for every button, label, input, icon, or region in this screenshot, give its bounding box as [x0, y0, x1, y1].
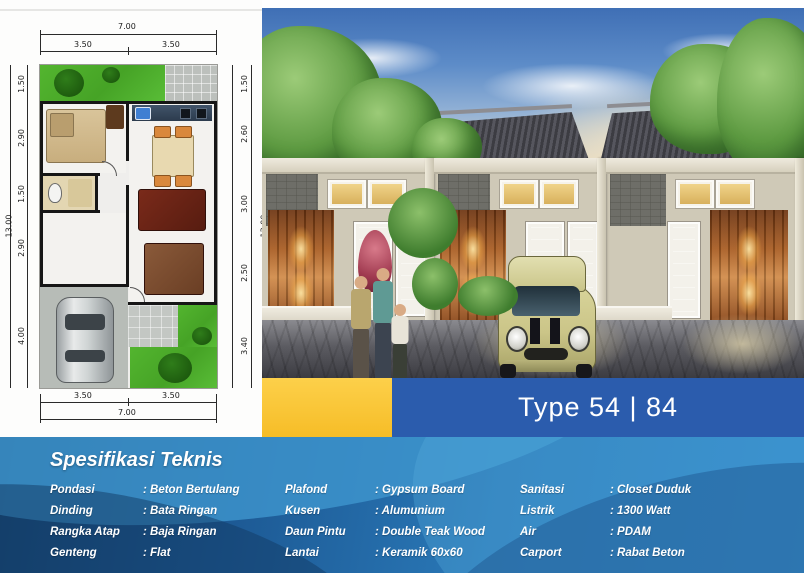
floor-plan-panel: 7.00 3.50 3.50 3.50 3.50 7.00 13.00 1.50… [0, 0, 262, 437]
spec-row: Lantai: Keramik 60x60 [285, 547, 485, 568]
spec-row: Pondasi: Beton Bertulang [50, 484, 239, 505]
spec-column-2: Plafond: Gypsum Board Kusen: Alumunium D… [285, 484, 485, 568]
bedroom-2-floor [43, 213, 126, 284]
wall-lamp-glow [460, 226, 486, 272]
spec-label: Dinding [50, 505, 143, 517]
person-legs [393, 344, 407, 378]
dim-label: 13.00 [5, 215, 13, 238]
dim-line-right-total [251, 65, 252, 388]
tree [717, 18, 804, 178]
spec-column-1: Pondasi: Beton Bertulang Dinding: Bata R… [50, 484, 239, 568]
type-bar-yellow-block [262, 378, 392, 437]
tall-window [668, 222, 700, 318]
dim-label: 7.00 [118, 23, 136, 31]
light-pool [682, 314, 802, 374]
spec-value: : Gypsum Board [375, 484, 464, 496]
spec-value: : PDAM [610, 526, 651, 538]
dim-label: 2.90 [18, 239, 26, 257]
wall-lamp-glow [736, 226, 762, 272]
person-legs [353, 329, 369, 378]
dim-tick [40, 394, 41, 423]
dining-chair [175, 126, 192, 138]
back-patio [128, 305, 178, 347]
stove-burner [180, 108, 191, 119]
divider-line [0, 9, 262, 11]
dim-line-top-total [40, 34, 217, 35]
dim-label: 2.90 [18, 129, 26, 147]
bed [46, 109, 106, 163]
dim-line-left-segments [27, 65, 28, 388]
spec-value: : Rabat Beton [610, 547, 685, 559]
person-head [355, 276, 368, 289]
bonnet-stripe [550, 318, 560, 344]
dim-label: 7.00 [118, 409, 136, 417]
headlight [506, 326, 528, 352]
spec-label: Carport [520, 547, 610, 559]
spec-row: Dinding: Bata Ringan [50, 505, 239, 526]
dim-tick [128, 398, 129, 406]
sitting-sofa [144, 243, 204, 295]
fascia [434, 158, 604, 174]
spec-value: : 1300 Watt [610, 505, 671, 517]
headlight [568, 326, 590, 352]
dim-line-right-segments [232, 65, 233, 388]
dim-label: 3.50 [162, 392, 180, 400]
dim-label: 1.50 [18, 75, 26, 93]
spec-label: Kusen [285, 505, 375, 517]
person-torso [351, 289, 371, 329]
dim-tick [216, 394, 217, 423]
house-render-panel [262, 8, 804, 378]
spec-column-3: Sanitasi: Closet Duduk Listrik: 1300 Wat… [520, 484, 691, 568]
dining-chair [175, 175, 192, 187]
car [498, 256, 594, 378]
clerestory-window [540, 180, 578, 208]
stone-accent [610, 174, 666, 226]
dim-label: 3.50 [74, 41, 92, 49]
person-head [377, 268, 390, 281]
spec-label: Sanitasi [520, 484, 610, 496]
spec-value: : Double Teak Wood [375, 526, 485, 538]
clerestory-window [716, 180, 754, 208]
spec-row: Plafond: Gypsum Board [285, 484, 485, 505]
bonnet-stripe [530, 318, 540, 344]
spec-label: Pondasi [50, 484, 143, 496]
spec-label: Daun Pintu [285, 526, 375, 538]
clerestory-window [328, 180, 366, 208]
wall-lamp-glow [288, 226, 314, 272]
wall [95, 173, 98, 213]
dim-label: 4.00 [18, 327, 26, 345]
dim-tick [40, 30, 41, 55]
spec-row: Genteng: Flat [50, 547, 239, 568]
frangipani-tree [388, 188, 458, 258]
spec-row: Kusen: Alumunium [285, 505, 485, 526]
person-head [394, 304, 406, 316]
plan-car [56, 297, 114, 383]
spec-row: Sanitasi: Closet Duduk [520, 484, 691, 505]
fascia [262, 158, 432, 174]
shrub [458, 276, 518, 316]
dim-label: 2.50 [241, 264, 249, 282]
car-rear-glass [65, 350, 105, 362]
person-legs [375, 323, 391, 378]
spec-value: : Flat [143, 547, 170, 559]
party-wall [597, 158, 606, 328]
spec-label: Plafond [285, 484, 375, 496]
spec-row: Carport: Rabat Beton [520, 547, 691, 568]
wall [214, 101, 217, 305]
car-wheel [576, 364, 592, 378]
garden-tree [158, 353, 192, 383]
dim-tick [128, 47, 129, 55]
bath-vanity [68, 179, 92, 207]
dining-chair [154, 175, 171, 187]
dim-line-bottom-total [40, 419, 217, 420]
spec-label: Rangka Atap [50, 526, 143, 538]
dim-label: 1.50 [241, 75, 249, 93]
living-sofa [138, 189, 206, 231]
house-unit [606, 158, 804, 328]
spec-value: : Closet Duduk [610, 484, 691, 496]
window-glass [504, 184, 534, 204]
brochure-page: 7.00 3.50 3.50 3.50 3.50 7.00 13.00 1.50… [0, 0, 804, 573]
floor-plan-lot [40, 65, 217, 388]
spec-value: : Bata Ringan [143, 505, 217, 517]
toilet [48, 183, 62, 203]
person-adult-1 [350, 276, 372, 378]
window-glass [544, 184, 574, 204]
spec-label: Lantai [285, 547, 375, 559]
dining-table [152, 135, 194, 177]
window-glass [720, 184, 750, 204]
kitchen-sink [135, 107, 151, 120]
wardrobe [106, 105, 124, 129]
entry-patio [165, 65, 217, 102]
wall-lamp-glow [736, 270, 762, 316]
window-glass [680, 184, 710, 204]
car-windshield [512, 286, 580, 316]
type-bar: Type 54 | 84 [392, 378, 804, 437]
agave-plant [412, 258, 458, 310]
pillow [50, 113, 74, 137]
spec-value: : Keramik 60x60 [375, 547, 463, 559]
spec-row: Daun Pintu: Double Teak Wood [285, 526, 485, 547]
stove-burner [196, 108, 207, 119]
car-windshield [65, 314, 105, 330]
fascia [606, 158, 804, 174]
spec-label: Listrik [520, 505, 610, 517]
spec-row: Rangka Atap: Baja Ringan [50, 526, 239, 547]
window-glass [673, 227, 695, 313]
car-grille [524, 348, 568, 360]
party-wall [795, 158, 804, 328]
garden-tree [102, 67, 120, 83]
spec-row: Listrik: 1300 Watt [520, 505, 691, 526]
person-torso [392, 316, 409, 344]
spec-title: Spesifikasi Teknis [50, 449, 223, 472]
dim-label: 3.40 [241, 337, 249, 355]
spec-label: Air [520, 526, 610, 538]
car-wheel [500, 364, 516, 378]
person-child [390, 304, 410, 378]
garden-tree [54, 69, 84, 97]
spec-value: : Baja Ringan [143, 526, 216, 538]
spec-value: : Alumunium [375, 505, 445, 517]
dim-label: 3.50 [162, 41, 180, 49]
dim-label: 2.60 [241, 125, 249, 143]
house-type-label: Type 54 | 84 [518, 392, 678, 423]
dim-tick [216, 30, 217, 55]
garden-tree [192, 327, 212, 345]
spec-label: Genteng [50, 547, 143, 559]
spec-value: : Beton Bertulang [143, 484, 239, 496]
dining-chair [154, 126, 171, 138]
dim-label: 3.00 [241, 195, 249, 213]
spec-row: Air: PDAM [520, 526, 691, 547]
dim-label: 3.50 [74, 392, 92, 400]
clerestory-window [676, 180, 714, 208]
window-glass [332, 184, 362, 204]
clerestory-window [500, 180, 538, 208]
dim-label: 1.50 [18, 185, 26, 203]
